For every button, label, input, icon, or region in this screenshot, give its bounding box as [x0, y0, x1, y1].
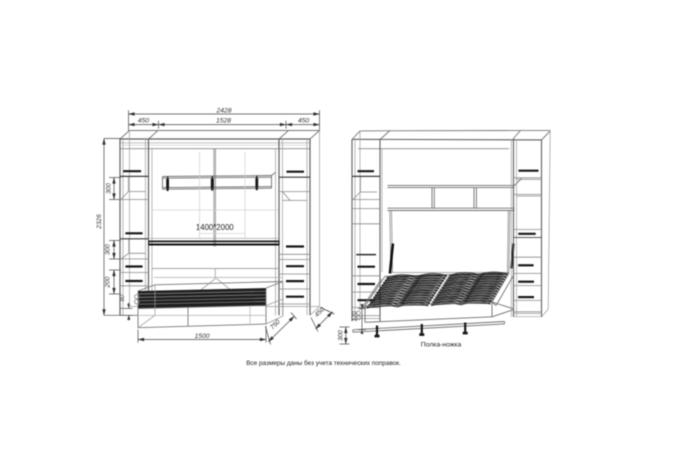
svg-text:200: 200 — [105, 276, 112, 288]
svg-text:300: 300 — [105, 244, 112, 255]
svg-text:1400*2000: 1400*2000 — [196, 223, 234, 232]
svg-text:Все размеры даны без учета тех: Все размеры даны без учета технических п… — [246, 359, 401, 367]
svg-text:Полка-ножка: Полка-ножка — [421, 341, 462, 348]
svg-text:750: 750 — [269, 318, 282, 331]
svg-text:450: 450 — [138, 117, 150, 124]
svg-text:300: 300 — [338, 330, 345, 341]
svg-text:450: 450 — [298, 117, 310, 124]
svg-text:170: 170 — [353, 311, 359, 322]
svg-text:300: 300 — [106, 183, 113, 194]
svg-text:2326: 2326 — [96, 214, 103, 230]
svg-text:1528: 1528 — [216, 117, 231, 124]
svg-text:2428: 2428 — [215, 107, 231, 114]
svg-text:1500: 1500 — [194, 333, 209, 340]
svg-text:450: 450 — [313, 306, 326, 319]
